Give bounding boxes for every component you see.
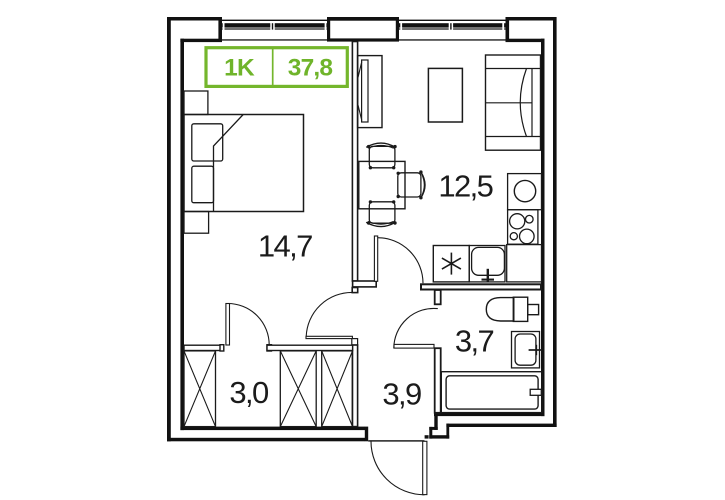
svg-text:14,7: 14,7 <box>258 228 312 263</box>
svg-text:12,5: 12,5 <box>438 168 492 203</box>
svg-text:3,9: 3,9 <box>382 377 421 412</box>
svg-text:3,7: 3,7 <box>455 324 494 359</box>
svg-text:37,8: 37,8 <box>288 55 333 82</box>
svg-text:3,0: 3,0 <box>229 375 269 410</box>
svg-text:1K: 1K <box>224 55 255 82</box>
